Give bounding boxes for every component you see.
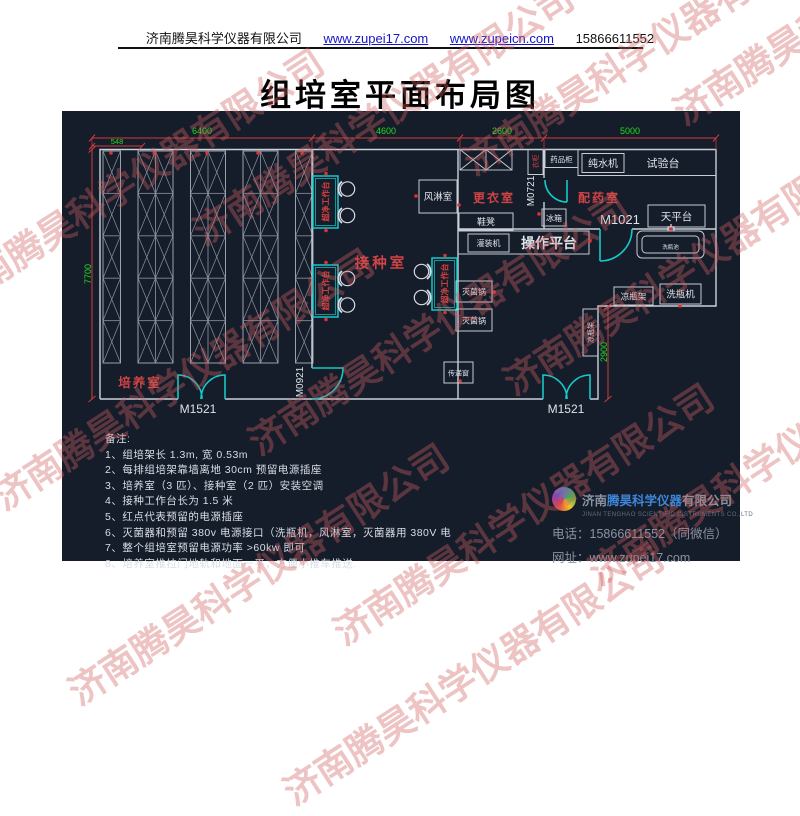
page-title: 组培室平面布局图 [0, 70, 800, 115]
header-phone: 15866611552 [576, 31, 655, 46]
page: { "header": { "company": "济南腾昊科学仪器有限公司",… [0, 0, 800, 600]
dim-6400: 6400 [192, 126, 212, 136]
dim-7700: 7700 [83, 264, 93, 284]
footer-phone-label: 电话： [552, 527, 590, 541]
footer-contact: 济南腾昊科学仪器有限公司 JINAN TENGHAO SCIENTIFIC IN… [552, 487, 742, 566]
dim-4600: 4600 [376, 126, 396, 136]
note-line: 7、整个组培室预留电源功率 >60kw 即可 [105, 541, 451, 557]
clean-bench-label: 超净工作台 [321, 182, 331, 223]
note-line: 5、红点代表预留的电源插座 [105, 510, 451, 526]
bottle-rack-label: 凉瓶架 [621, 292, 647, 302]
door-label-m1021: M1021 [600, 212, 640, 227]
room-label-changing: 更衣室 [473, 190, 515, 205]
page-header: 济南腾昊科学仪器有限公司 www.zupei17.com www.zupeicn… [0, 28, 800, 47]
medicine-cabinet-label: 药品柜 [550, 154, 573, 164]
notes-title: 备注: [105, 432, 451, 448]
test-bench-label: 试验台 [647, 156, 680, 170]
note-line: 3、培养室（3 匹）、接种室（2 匹）安装空调 [105, 479, 451, 495]
header-divider [118, 47, 643, 49]
operation-platform-label: 操作平台 [521, 235, 577, 251]
footer-company-english: JINAN TENGHAO SCIENTIFIC INSTRUMENTS CO.… [582, 512, 742, 518]
dim-2600: 2600 [492, 126, 512, 136]
footer-phone-value: 15866611552（同微信） [590, 527, 728, 541]
header-link-zupeicn[interactable]: www.zupeicn.com [450, 31, 554, 46]
footer-phone-line: 电话：15866611552（同微信） [552, 523, 742, 542]
sterilizer-label: 灭菌锅 [462, 287, 486, 297]
company-logo-icon [552, 487, 576, 511]
notes-block: 备注: 1、组培架长 1.3m, 宽 0.53m 2、每排组培架靠墙离地 30c… [105, 432, 451, 572]
wash-sink-label: 洗瓶池 [662, 243, 679, 251]
door-label-m1521-left: M1521 [180, 402, 217, 416]
bottle-rack-label: 凉瓶架 [586, 322, 595, 343]
note-line: 8、培养室推拉门地轨和地面一平，方便小推车推送. [105, 557, 451, 573]
note-line: 4、接种工作台长为 1.5 米 [105, 494, 451, 510]
filling-machine-label: 灌装机 [477, 238, 501, 248]
clean-bench-label: 超净工作台 [321, 271, 331, 312]
door-label-m0721: M0721 [526, 175, 537, 206]
dim-2900: 2900 [599, 342, 609, 362]
pass-window-label: 传递窗 [448, 369, 469, 378]
balance-label: 天平台 [661, 210, 693, 223]
footer-company-prefix: 济南 [582, 494, 607, 508]
shoe-bench-label: 鞋凳 [477, 216, 495, 227]
note-line: 6、灭菌器和预留 380v 电源接口（洗瓶机，风淋室，灭菌器用 380V 电 [105, 526, 451, 542]
room-label-culture: 培养室 [118, 375, 162, 390]
note-line: 1、组培架长 1.3m, 宽 0.53m [105, 448, 451, 464]
dim-5000: 5000 [620, 126, 640, 136]
header-company: 济南腾昊科学仪器有限公司 [146, 31, 302, 46]
clean-bench-label: 超净工作台 [440, 264, 450, 305]
header-link-zupei17[interactable]: www.zupei17.com [323, 31, 428, 46]
footer-company-suffix: 有限公司 [682, 494, 732, 508]
locker-label: 衣柜 [531, 155, 540, 169]
fridge-label: 冰箱 [546, 213, 562, 223]
footer-web-label: 网址： [552, 551, 590, 565]
room-label-dispensing: 配药室 [578, 190, 620, 205]
sterilizer-label: 灭菌锅 [462, 316, 486, 326]
pure-water-label: 纯水机 [588, 157, 618, 170]
footer-web-line: 网址：www.zupei17.com [552, 547, 742, 566]
dim-548: 548 [111, 137, 124, 146]
note-line: 2、每排组培架靠墙离地 30cm 预留电源插座 [105, 463, 451, 479]
bottle-washer-label: 洗瓶机 [666, 289, 695, 301]
footer-company-name: 济南腾昊科学仪器有限公司 [582, 490, 732, 509]
door-label-m1521-right: M1521 [548, 402, 585, 416]
footer-web-value[interactable]: www.zupei17.com [590, 551, 691, 565]
footer-company-brand: 腾昊科学仪器 [607, 494, 682, 508]
room-label-inoculation: 接种室 [355, 254, 408, 272]
air-shower-label: 风淋室 [424, 191, 453, 203]
door-label-m0921: M0921 [295, 366, 306, 397]
